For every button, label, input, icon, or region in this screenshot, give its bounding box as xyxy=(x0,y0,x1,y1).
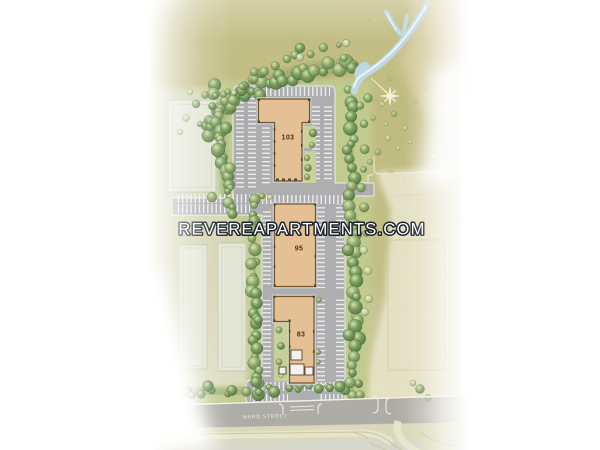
svg-text:95: 95 xyxy=(295,246,304,253)
svg-text:83: 83 xyxy=(297,332,306,339)
svg-text:WARD STREET: WARD STREET xyxy=(242,413,287,420)
svg-text:103: 103 xyxy=(282,135,295,142)
